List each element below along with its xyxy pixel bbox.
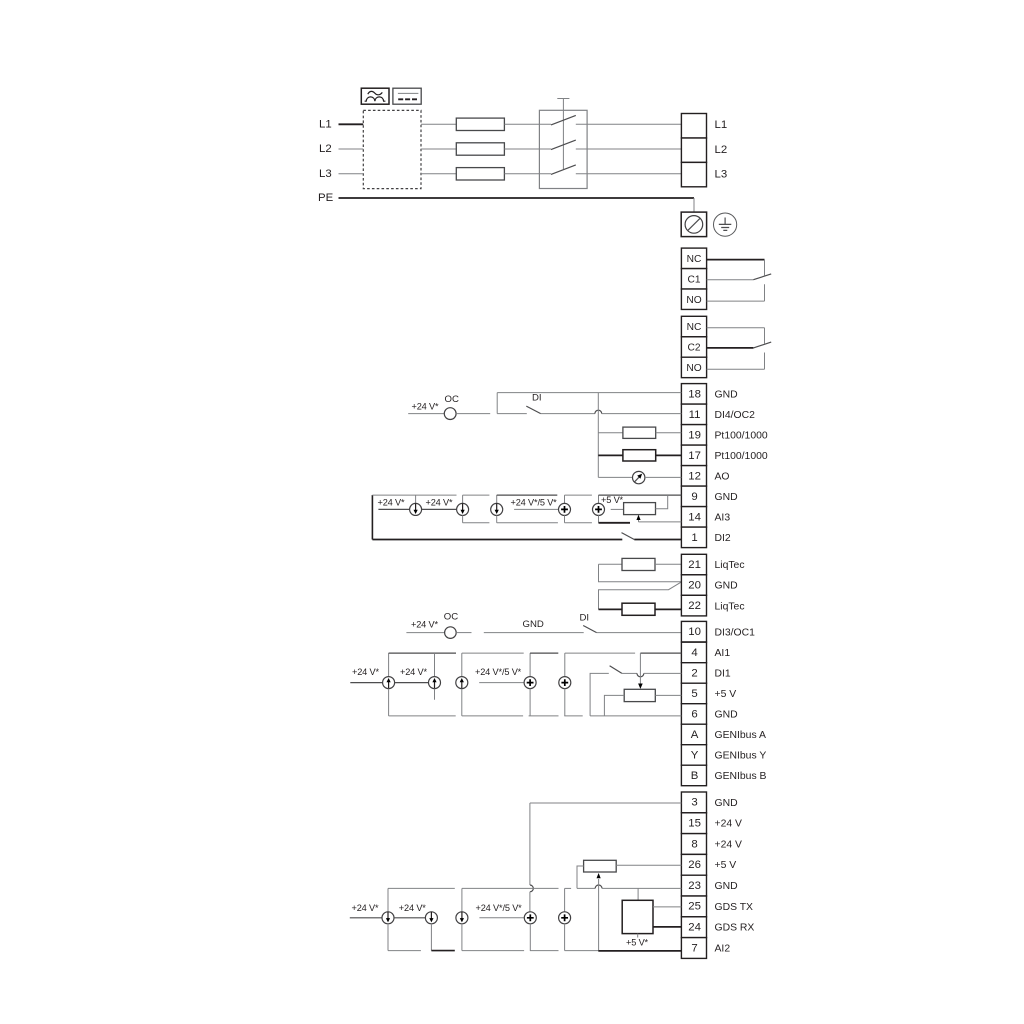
svg-text:A: A [691, 729, 699, 741]
svg-text:AO: AO [715, 472, 730, 483]
svg-text:GENIbus B: GENIbus B [715, 771, 767, 782]
svg-text:+5 V: +5 V [715, 860, 737, 871]
svg-text:DI2: DI2 [715, 533, 731, 544]
svg-text:NC: NC [687, 322, 702, 333]
svg-text:7: 7 [691, 942, 697, 954]
svg-text:L2: L2 [715, 144, 728, 156]
svg-text:+24 V*: +24 V* [411, 620, 439, 630]
svg-text:6: 6 [691, 709, 697, 721]
svg-text:DI: DI [532, 392, 542, 403]
svg-text:17: 17 [688, 450, 701, 462]
svg-text:22: 22 [688, 600, 701, 612]
svg-text:GND: GND [715, 492, 738, 503]
svg-text:C1: C1 [687, 274, 700, 285]
svg-text:+24 V*: +24 V* [378, 497, 406, 507]
svg-text:GND: GND [715, 881, 738, 892]
svg-text:AI3: AI3 [715, 513, 731, 524]
svg-text:26: 26 [688, 859, 701, 871]
svg-text:15: 15 [688, 818, 701, 830]
svg-text:+24 V*: +24 V* [399, 903, 427, 913]
svg-text:+24 V*: +24 V* [412, 402, 440, 412]
svg-text:L3: L3 [319, 168, 332, 180]
svg-text:OC: OC [445, 394, 459, 405]
svg-text:1: 1 [691, 532, 697, 544]
svg-text:GENIbus A: GENIbus A [715, 730, 766, 741]
svg-text:OC: OC [444, 612, 458, 623]
svg-text:L3: L3 [715, 169, 728, 181]
svg-text:DI1: DI1 [715, 669, 731, 680]
svg-text:+24 V*: +24 V* [352, 667, 380, 677]
svg-text:GND: GND [715, 798, 738, 809]
svg-text:+5 V*: +5 V* [626, 938, 649, 948]
svg-text:L1: L1 [715, 119, 728, 131]
svg-text:NO: NO [686, 295, 701, 306]
svg-text:GND: GND [523, 619, 544, 630]
svg-text:18: 18 [688, 389, 701, 401]
svg-text:AI2: AI2 [715, 943, 731, 954]
svg-text:25: 25 [688, 901, 701, 913]
svg-text:GDS RX: GDS RX [715, 923, 755, 934]
svg-text:GDS TX: GDS TX [715, 902, 754, 913]
svg-text:12: 12 [688, 471, 701, 483]
svg-text:+5 V: +5 V [715, 689, 737, 700]
svg-text:L2: L2 [319, 143, 332, 155]
svg-text:+24 V: +24 V [715, 819, 743, 830]
svg-text:DI4/OC2: DI4/OC2 [715, 410, 756, 421]
svg-text:+24 V*: +24 V* [400, 667, 428, 677]
svg-text:LiqTec: LiqTec [715, 601, 745, 612]
svg-text:GND: GND [715, 710, 738, 721]
svg-text:8: 8 [691, 838, 697, 850]
svg-text:4: 4 [691, 647, 697, 659]
svg-text:14: 14 [688, 512, 701, 524]
svg-text:DI: DI [580, 612, 590, 623]
svg-text:GND: GND [715, 581, 738, 592]
svg-text:C2: C2 [687, 343, 700, 354]
svg-text:3: 3 [691, 797, 697, 809]
svg-text:AI1: AI1 [715, 648, 731, 659]
svg-text:+24 V*: +24 V* [352, 903, 380, 913]
svg-text:+24 V*/5 V*: +24 V*/5 V* [475, 667, 522, 677]
svg-text:+24 V*/5 V*: +24 V*/5 V* [511, 497, 558, 507]
svg-text:20: 20 [688, 580, 701, 592]
svg-text:Pt100/1000: Pt100/1000 [715, 431, 768, 442]
svg-text:L1: L1 [319, 118, 332, 130]
svg-text:23: 23 [688, 880, 701, 892]
svg-text:DI3/OC1: DI3/OC1 [715, 627, 756, 638]
svg-text:LiqTec: LiqTec [715, 560, 745, 571]
svg-text:9: 9 [691, 491, 697, 503]
svg-text:Y: Y [691, 750, 699, 762]
svg-text:+24 V*: +24 V* [426, 497, 454, 507]
svg-text:GENIbus Y: GENIbus Y [715, 751, 767, 762]
svg-text:21: 21 [688, 559, 701, 571]
svg-text:B: B [691, 770, 699, 782]
svg-text:+5 V*: +5 V* [601, 495, 624, 505]
svg-text:11: 11 [689, 409, 701, 421]
svg-text:+24 V: +24 V [715, 839, 743, 850]
svg-text:10: 10 [688, 626, 701, 638]
svg-text:2: 2 [691, 668, 697, 680]
svg-text:5: 5 [691, 688, 697, 700]
svg-text:PE: PE [318, 192, 334, 204]
svg-text:Pt100/1000: Pt100/1000 [715, 451, 768, 462]
svg-text:GND: GND [715, 390, 738, 401]
svg-text:NO: NO [686, 363, 701, 374]
svg-text:24: 24 [688, 922, 701, 934]
svg-text:+24 V*/5 V*: +24 V*/5 V* [476, 903, 523, 913]
svg-text:19: 19 [688, 430, 701, 442]
svg-text:NC: NC [687, 254, 702, 265]
